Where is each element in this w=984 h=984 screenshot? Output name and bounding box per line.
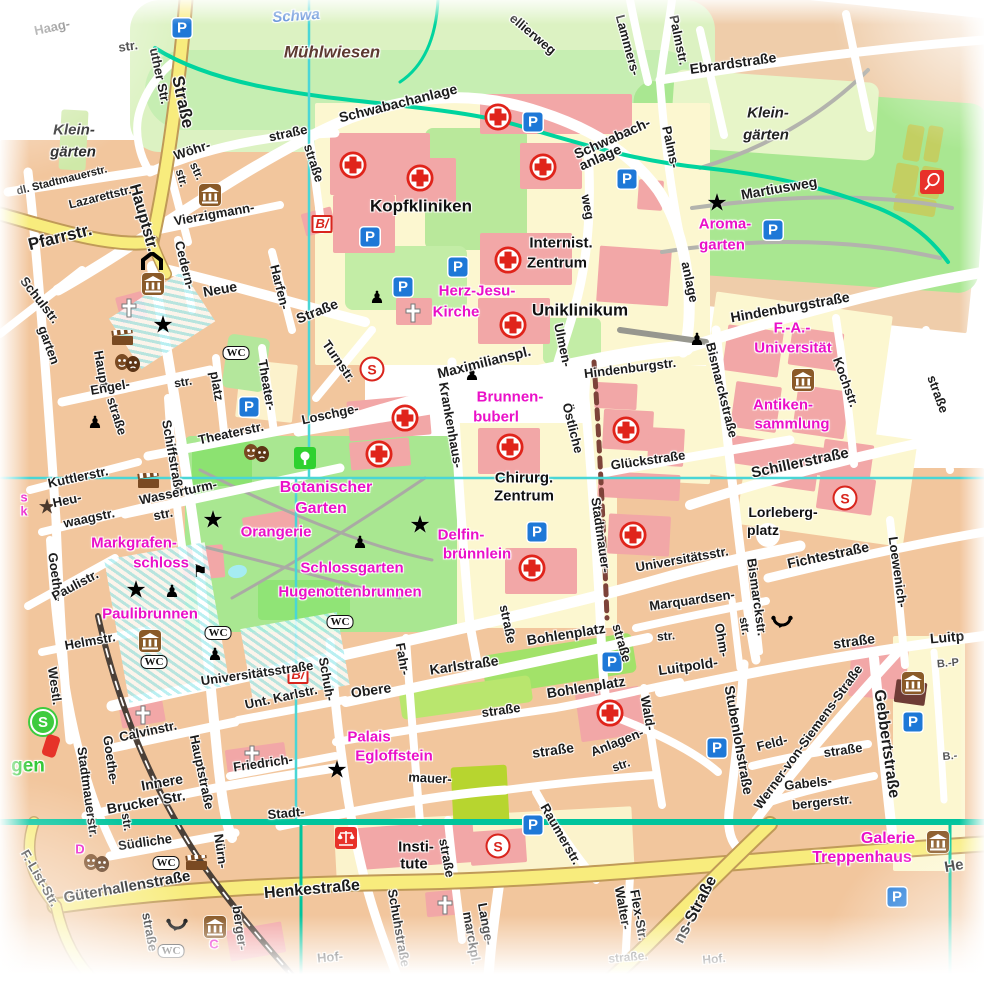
street-label: straße xyxy=(925,373,951,414)
street-label: Palms- xyxy=(660,125,682,169)
street-label: Haag- xyxy=(33,17,71,37)
street-label: Friedrich- xyxy=(232,752,293,773)
street-label: Südliche xyxy=(117,832,172,852)
poi-label: s xyxy=(20,491,27,504)
street-label: Luitpold- xyxy=(657,655,718,677)
poi-label: garten xyxy=(699,238,745,253)
street-label: garten xyxy=(36,324,62,366)
street-label: straße xyxy=(610,622,633,663)
street-label: gen xyxy=(11,757,45,776)
street-label: Lammers- xyxy=(614,13,643,76)
street-label: str. xyxy=(657,629,676,643)
street-label: Schwa xyxy=(272,7,320,25)
street-label: Anlagen- xyxy=(589,726,645,759)
street-label: Goethe- xyxy=(101,735,121,785)
poi-label: D xyxy=(75,843,84,856)
street-label: Krankenhaus- xyxy=(437,381,465,469)
street-label: anlage xyxy=(679,261,700,304)
street-label: Chirurg. xyxy=(495,471,553,486)
poi-label: Delfin- xyxy=(438,528,485,543)
street-label: Stadtmauer- xyxy=(589,497,612,574)
poi-label: Kirche xyxy=(433,305,480,320)
street-label: straße xyxy=(437,838,457,879)
street-label: Henkestraße xyxy=(263,878,360,902)
street-label: Fichtestraße xyxy=(786,539,870,570)
street-label: Marquardsen- xyxy=(649,588,736,613)
street-label: Stubenlohstraße xyxy=(723,684,756,795)
street-label: str. xyxy=(152,506,174,523)
street-label: Zentrum xyxy=(527,256,587,271)
street-label: ellierweg xyxy=(508,11,559,57)
street-label: Flex-Str. xyxy=(628,889,650,942)
street-label: str. xyxy=(120,812,134,832)
street-label: Straße xyxy=(294,296,340,325)
poi-label: Galerie xyxy=(861,831,915,847)
street-label: berger- xyxy=(230,905,249,951)
street-label: Gebbertstraße xyxy=(870,689,901,800)
street-label: Internist. xyxy=(529,236,592,251)
street-label: Universitätsstraße xyxy=(200,659,314,688)
street-label: Bismarckstraße xyxy=(704,341,740,439)
street-label: Karlstraße xyxy=(429,653,500,677)
street-label: Klein- xyxy=(747,106,789,121)
street-label: Cedern- xyxy=(173,240,197,291)
street-label: Stadt- xyxy=(267,805,305,821)
street-label: Wald- xyxy=(639,695,658,732)
street-label: Schillerstraße xyxy=(750,445,850,480)
street-label: Vierzigmann- xyxy=(173,201,255,228)
poi-label: Markgrafen- xyxy=(91,536,177,551)
street-label: Klein- xyxy=(53,123,95,138)
street-label: str. xyxy=(188,160,206,181)
street-label: str. xyxy=(117,38,138,54)
street-label: Theater- xyxy=(256,359,278,412)
street-label: He xyxy=(943,857,965,875)
street-label: Schwabachanlage xyxy=(337,82,458,125)
poi-label: Aroma- xyxy=(699,217,752,232)
poi-label: F.-A.- xyxy=(774,321,811,336)
street-label: tute xyxy=(400,857,428,872)
street-label: straße xyxy=(302,142,326,183)
street-label: Östliche xyxy=(560,402,585,455)
street-label: Theaterstr. xyxy=(197,420,265,447)
street-label: Westl. xyxy=(46,666,64,706)
street-label: gärten xyxy=(50,145,96,160)
poi-label: brünnlein xyxy=(443,547,511,562)
street-label: platz xyxy=(208,370,226,401)
street-label: Glückstraße xyxy=(610,448,686,471)
street-label: Lazarettstr. xyxy=(67,183,132,210)
street-label: Kuttlerstr. xyxy=(47,464,110,489)
street-label: straße xyxy=(823,741,863,759)
street-label: Heu- xyxy=(52,491,83,510)
street-label: Uniklinikum xyxy=(532,302,628,319)
street-label: Hindenburgstr. xyxy=(583,356,676,380)
street-label: Bohlenplatz xyxy=(526,621,607,647)
street-label: Calvinstr. xyxy=(118,719,178,744)
poi-label: Schlossgarten xyxy=(300,561,403,576)
street-label: Harfen- xyxy=(268,263,292,310)
street-label: Obere xyxy=(350,680,392,699)
street-label: Helmstr. xyxy=(64,630,117,652)
street-label: str. xyxy=(174,168,191,189)
street-label: gärten xyxy=(743,128,789,143)
street-label: Ohm- xyxy=(713,622,732,658)
poi-label: schloss xyxy=(133,556,189,571)
poi-label: Palais xyxy=(347,730,390,745)
street-label: Turnstr. xyxy=(320,338,358,384)
street-label: Nürn- xyxy=(212,833,230,869)
poi-label: Paulibrunnen xyxy=(102,607,198,622)
poi-label: buberl xyxy=(473,410,519,425)
poi-label: Garten xyxy=(295,501,347,517)
street-label: Hauptstraße xyxy=(188,734,216,811)
street-label: B.-P xyxy=(937,658,960,671)
poi-label: Botanischer xyxy=(280,480,372,496)
poi-label: Herz-Jesu- xyxy=(439,284,516,299)
street-label: Zentrum xyxy=(494,489,554,504)
street-label: Kopfkliniken xyxy=(370,198,472,215)
street-label: F.-List-Str. xyxy=(19,848,62,909)
street-label: Pfarrstr. xyxy=(26,221,93,253)
street-label: Güterhallenstraße xyxy=(62,868,191,905)
street-label: Gabels- xyxy=(784,774,833,792)
street-label: mauer- xyxy=(408,770,452,785)
poi-label: sammlung xyxy=(754,417,829,432)
street-label: Loewenich- xyxy=(887,536,910,609)
street-label: Maximilianspl. xyxy=(436,344,532,381)
street-label: Loschge- xyxy=(300,402,359,427)
street-label: waagstr. xyxy=(62,506,116,530)
street-label: straße xyxy=(140,912,160,953)
street-label: Hof- xyxy=(316,949,343,964)
street-label: ns-Straße xyxy=(672,874,721,947)
street-label: straße xyxy=(268,123,309,144)
street-label: Neue xyxy=(202,279,238,299)
street-label: str. xyxy=(738,616,753,636)
map-labels: SchwaMühlwiesenKlein-gärtenKlein-gärtenS… xyxy=(0,0,984,984)
poi-label: Hugenottenbrunnen xyxy=(278,585,421,600)
street-label: Schulstr. xyxy=(18,274,62,325)
street-label: Wöhr- xyxy=(172,138,212,162)
street-label: platz xyxy=(747,523,779,537)
street-label: straße xyxy=(105,395,129,436)
street-label: Palmstr. xyxy=(667,14,690,66)
city-map: PPPPPPPPPPPPPPSSSSWCWCWCWCWCWCB/B/★★★★★★… xyxy=(0,0,984,984)
street-label: Kochstr. xyxy=(831,355,861,408)
poi-label: Brunnen- xyxy=(477,390,544,405)
street-label: straße xyxy=(832,631,876,651)
street-label: Raumerstr. xyxy=(538,801,583,866)
poi-label: Egloffstein xyxy=(355,749,433,764)
street-label: Schuh- xyxy=(317,656,337,702)
street-label: Insti- xyxy=(398,840,434,855)
street-label: B.- xyxy=(942,751,958,763)
poi-label: k xyxy=(20,505,27,518)
street-label: weg xyxy=(579,193,596,220)
street-label: Luitp xyxy=(929,629,964,646)
street-label: bergerstr. xyxy=(791,792,852,811)
street-label: Stadtmauerstr. xyxy=(75,746,101,838)
street-label: Hof. xyxy=(702,952,726,966)
street-label: straße xyxy=(531,740,575,760)
street-label: Ebrardstraße xyxy=(689,50,777,76)
street-label: Schuhstraße xyxy=(386,888,412,968)
street-label: Bohlenplatz xyxy=(546,674,627,700)
poi-label: Treppenhaus xyxy=(812,850,912,866)
street-label: Lorleberg- xyxy=(748,505,817,519)
poi-label: C xyxy=(209,938,218,951)
street-label: str. xyxy=(610,756,631,773)
poi-label: Universität xyxy=(754,341,832,356)
street-label: uther Str. xyxy=(148,47,173,106)
poi-label: Antiken- xyxy=(753,398,813,413)
street-label: Universitätsstr. xyxy=(635,544,730,573)
street-label: Ulmen- xyxy=(552,322,574,368)
street-label: Martiusweg xyxy=(740,174,818,201)
street-label: Fahr- xyxy=(394,642,412,676)
street-label: Feld- xyxy=(755,733,788,753)
street-label: straße xyxy=(481,701,521,719)
poi-label: Orangerie xyxy=(241,525,312,540)
street-label: straße xyxy=(498,604,519,645)
street-label: Mühlwiesen xyxy=(284,44,380,61)
street-label: straße. xyxy=(608,949,648,964)
street-label: Unt. Karlstr. xyxy=(244,683,319,711)
street-label: str. xyxy=(173,375,193,390)
